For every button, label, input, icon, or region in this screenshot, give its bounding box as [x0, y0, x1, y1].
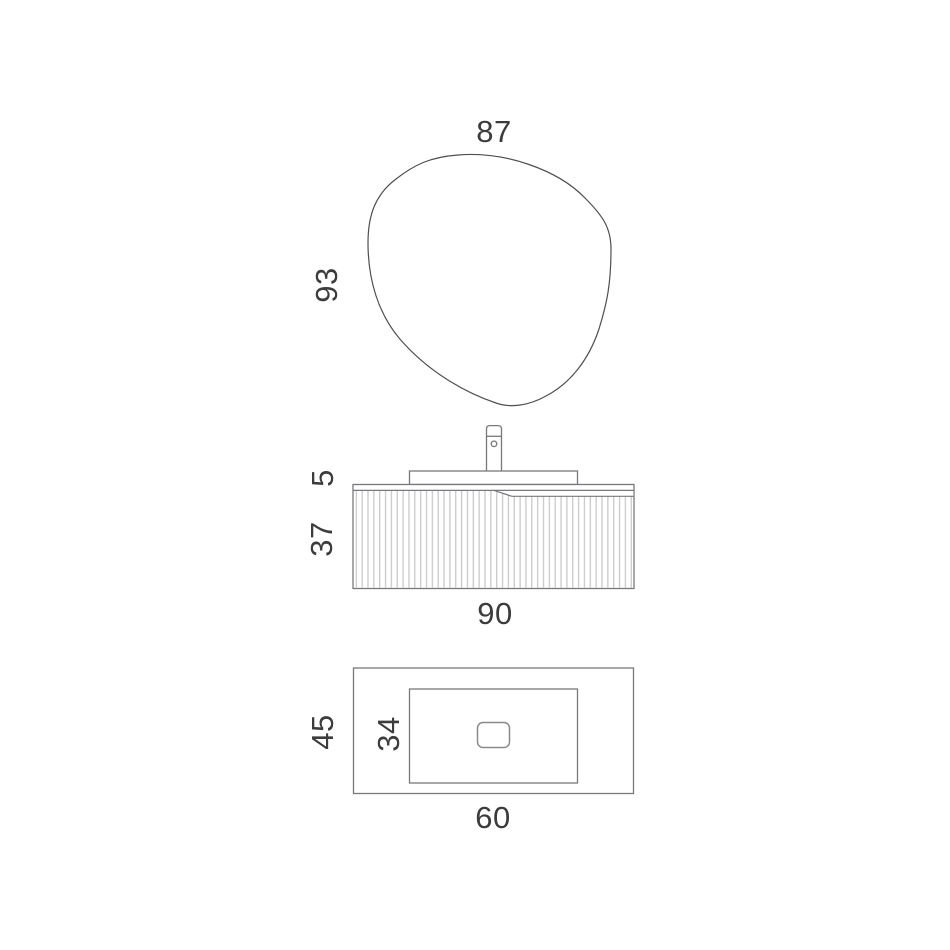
counter-width-label: 60 — [475, 800, 510, 836]
basin-deck — [410, 471, 578, 485]
mirror-width-label: 87 — [476, 114, 511, 150]
cabinet-height-label: 37 — [304, 521, 340, 556]
technical-drawing-page: 87 93 5 37 90 45 34 60 — [0, 0, 950, 950]
drain-hole — [478, 723, 510, 748]
fluted-front — [356, 490, 633, 587]
faucet-body — [487, 426, 502, 471]
mirror-outline — [368, 154, 611, 405]
cabinet-width-label: 90 — [477, 596, 512, 632]
cutout-depth-label: 34 — [371, 716, 407, 751]
handle-recess — [494, 491, 633, 496]
counter-height-label: 5 — [305, 469, 341, 487]
mirror-height-label: 93 — [309, 267, 345, 302]
counter-depth-label: 45 — [305, 714, 341, 749]
